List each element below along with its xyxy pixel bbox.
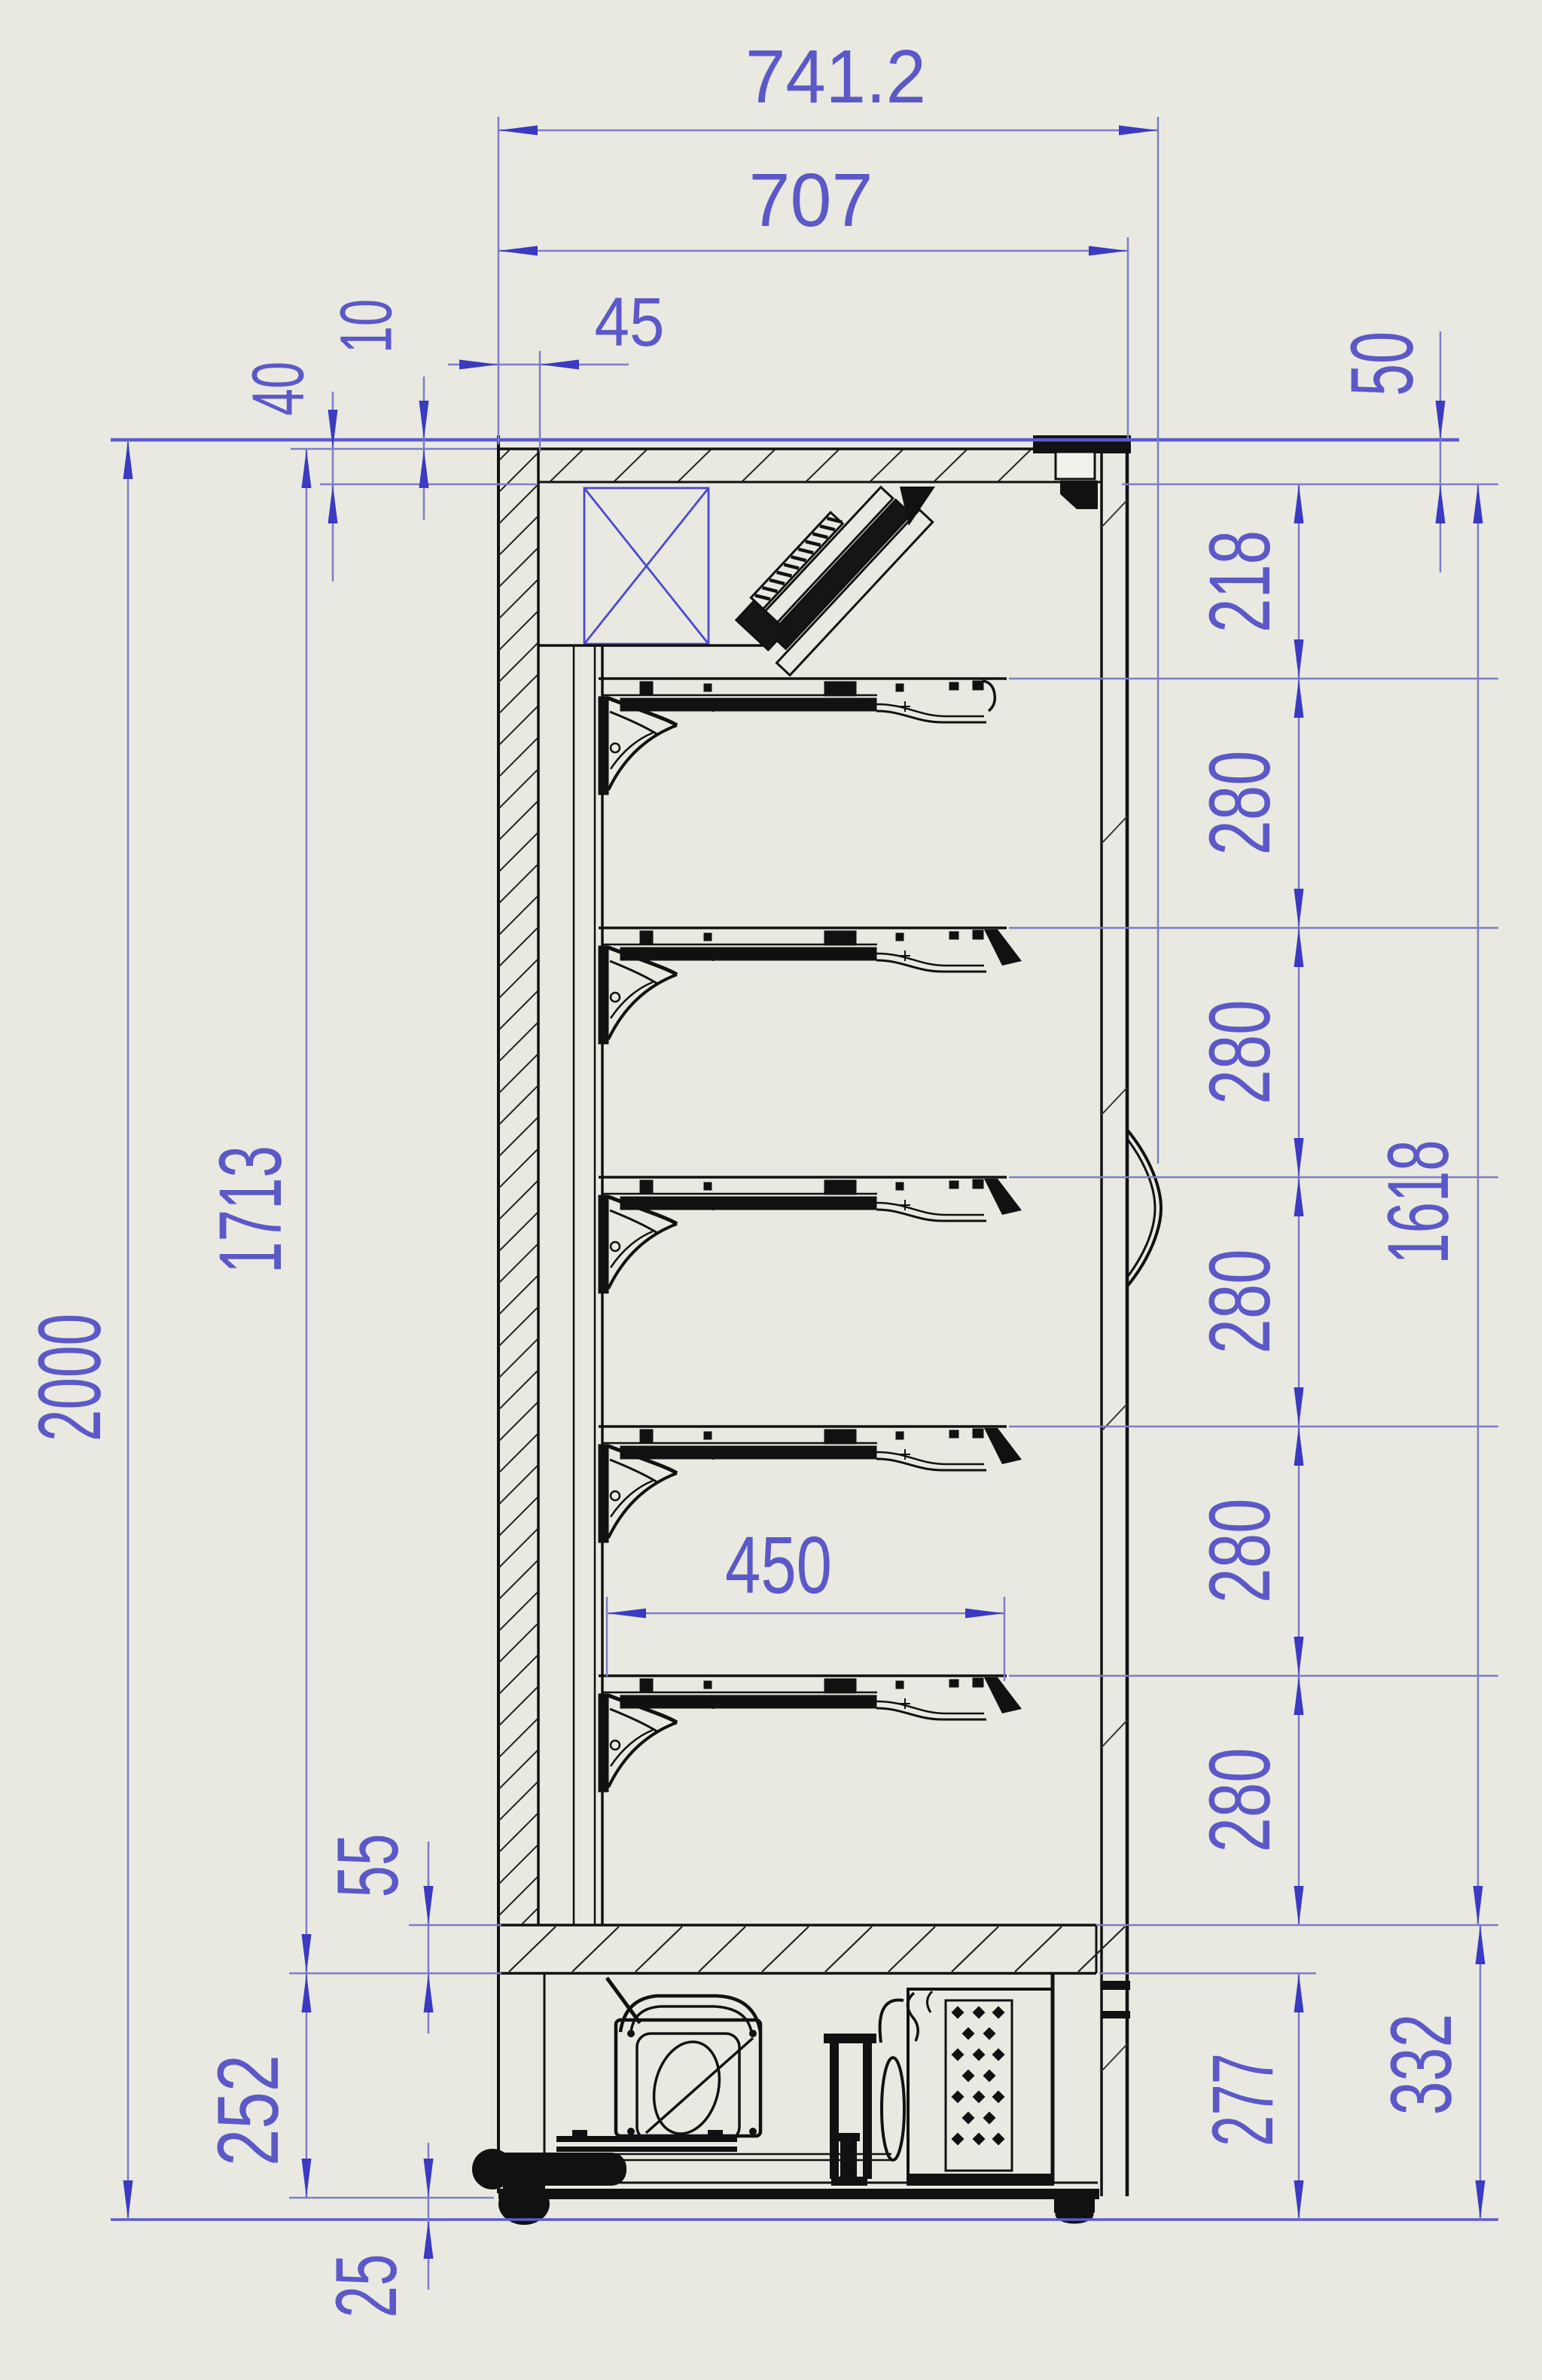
svg-text:55: 55: [320, 1834, 416, 1898]
svg-text:707: 707: [749, 158, 873, 243]
svg-text:252: 252: [200, 2055, 297, 2166]
svg-text:50: 50: [1333, 331, 1432, 396]
svg-text:280: 280: [1192, 1748, 1288, 1853]
svg-text:2000: 2000: [20, 1314, 120, 1442]
svg-text:280: 280: [1192, 751, 1288, 856]
svg-text:1713: 1713: [201, 1146, 300, 1274]
svg-text:1618: 1618: [1370, 1140, 1467, 1265]
svg-text:25: 25: [318, 2254, 415, 2318]
svg-text:741.2: 741.2: [745, 35, 926, 119]
svg-text:280: 280: [1192, 1499, 1288, 1603]
svg-text:280: 280: [1192, 1249, 1288, 1354]
svg-text:450: 450: [725, 1519, 832, 1610]
svg-text:277: 277: [1195, 2053, 1291, 2147]
svg-text:332: 332: [1373, 2014, 1470, 2116]
svg-text:280: 280: [1192, 1000, 1288, 1105]
svg-text:40: 40: [237, 362, 319, 416]
svg-text:218: 218: [1192, 530, 1288, 633]
svg-text:10: 10: [325, 299, 407, 353]
svg-text:45: 45: [595, 284, 665, 361]
